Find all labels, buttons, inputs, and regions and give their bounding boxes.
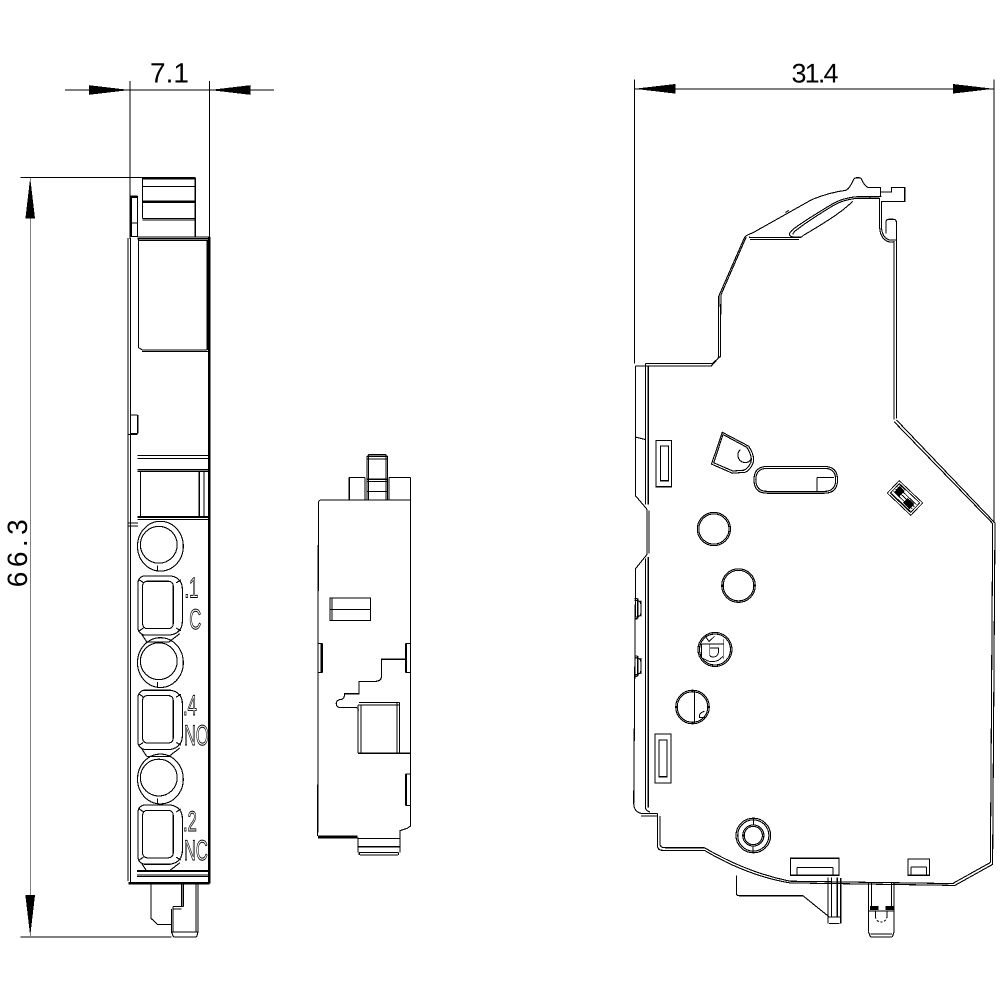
svg-text:.4: .4 xyxy=(183,690,197,722)
svg-text:31.4: 31.4 xyxy=(792,59,839,89)
svg-text:.2: .2 xyxy=(183,806,197,838)
svg-text:7.1: 7.1 xyxy=(150,58,189,89)
svg-text:NC: NC xyxy=(184,835,208,867)
svg-text:NO: NO xyxy=(184,720,209,752)
svg-text:66.3: 66.3 xyxy=(2,515,33,588)
svg-text:C: C xyxy=(189,604,201,636)
svg-text:.1: .1 xyxy=(185,573,199,605)
